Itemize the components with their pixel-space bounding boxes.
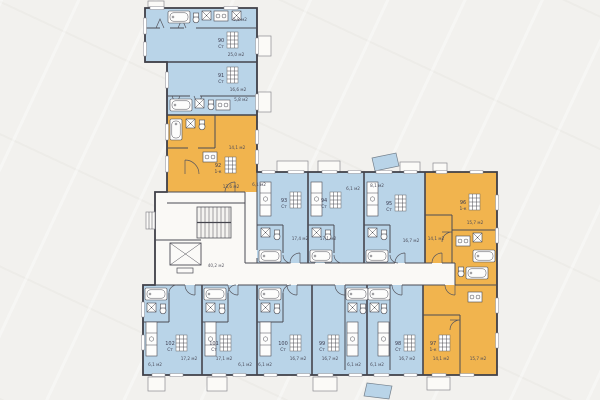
window xyxy=(150,7,164,10)
window xyxy=(460,374,474,377)
kitchen-counter-icon xyxy=(347,322,358,356)
area-label-main: 16,6 м2 xyxy=(230,87,247,92)
stove-icon xyxy=(216,100,230,110)
apartment-number: 95 xyxy=(386,201,392,207)
toilet-icon xyxy=(199,120,205,130)
apartment-number: 99 xyxy=(319,341,325,347)
window xyxy=(322,171,337,174)
corridor xyxy=(245,263,455,285)
area-table-icon xyxy=(227,32,238,48)
apartment-number: 100 xyxy=(278,341,288,347)
bathtub-icon xyxy=(259,288,281,300)
area-label-main: 16,7 м2 xyxy=(399,356,416,361)
apartment-number: 91 xyxy=(218,73,224,79)
window xyxy=(349,374,362,377)
area-table-icon xyxy=(330,192,341,208)
window xyxy=(264,374,277,377)
area-table-icon xyxy=(220,335,231,351)
area-label-main: 16,7 м2 xyxy=(403,238,420,243)
apartment-type: Ст xyxy=(395,347,401,353)
area-label-second: 5,8 м2 xyxy=(234,97,248,102)
area-label-second: 5,8 м2 xyxy=(233,17,247,22)
window xyxy=(404,374,417,377)
window xyxy=(348,171,361,174)
area-table-icon xyxy=(225,157,236,173)
washer-icon xyxy=(261,303,270,312)
balcony xyxy=(313,377,337,391)
area-label-main: 14,1 м2 xyxy=(433,356,450,361)
apartment-type: Ст xyxy=(167,347,173,353)
area-table-icon xyxy=(404,335,415,351)
window xyxy=(318,374,333,377)
kitchen-counter-icon xyxy=(378,322,389,356)
floor-plan-svg: 90 Ст 25,0 м2 5,8 м2 91 Ст 16,6 м2 5,8 м… xyxy=(0,0,600,400)
area-table-icon xyxy=(395,195,406,211)
floor-plan-canvas: 90 Ст 25,0 м2 5,8 м2 91 Ст 16,6 м2 5,8 м… xyxy=(0,0,600,400)
washer-icon xyxy=(206,303,215,312)
toilet-icon xyxy=(160,304,166,314)
balcony xyxy=(258,92,271,112)
stove-icon xyxy=(456,236,470,246)
area-label-second: 14,1 м2 xyxy=(428,236,445,241)
toilet-icon xyxy=(381,230,387,240)
washer-icon xyxy=(202,11,211,20)
window xyxy=(297,374,310,377)
window xyxy=(496,298,499,313)
apartment-96-room[interactable] xyxy=(425,172,497,263)
bathtub-icon xyxy=(259,250,281,262)
stove-icon xyxy=(214,11,228,21)
washer-icon xyxy=(261,228,270,237)
washer-icon xyxy=(186,119,195,128)
window xyxy=(170,374,183,377)
area-label-main: 15,7 м2 xyxy=(467,220,484,225)
kitchen-counter-icon xyxy=(260,322,271,356)
core-area xyxy=(155,192,245,285)
balcony xyxy=(148,1,164,7)
corridor-area-label: 40,2 м2 xyxy=(208,263,225,268)
area-table-icon xyxy=(469,194,480,210)
washer-icon xyxy=(370,303,379,312)
area-label-second: 6,1 м2 xyxy=(346,186,360,191)
bathtub-icon xyxy=(466,267,488,279)
window xyxy=(256,130,259,144)
window xyxy=(436,171,447,174)
area-label-main: 16,7 м2 xyxy=(322,356,339,361)
bathtub-icon xyxy=(368,288,390,300)
apartment-number: 90 xyxy=(218,38,224,44)
bathtub-icon xyxy=(170,119,182,140)
window xyxy=(166,156,169,172)
area-label-second: 6,1 м2 xyxy=(347,362,361,367)
window xyxy=(262,171,275,174)
area-label-second: 15,7 м2 xyxy=(470,356,487,361)
toilet-icon xyxy=(193,13,199,23)
area-label-second: 8,1 м2 xyxy=(370,183,384,188)
area-label-second: 6,1 м2 xyxy=(252,182,266,187)
window xyxy=(496,195,499,210)
area-table-icon xyxy=(439,335,450,351)
apartment-type: Ст xyxy=(218,79,224,85)
area-table-icon xyxy=(227,67,238,83)
apartment-type: 1-к xyxy=(459,206,466,212)
bathtub-icon xyxy=(168,11,190,23)
window xyxy=(224,7,238,10)
stove-icon xyxy=(468,292,482,302)
apartment-type: Ст xyxy=(280,347,286,353)
apartment-type: Ст xyxy=(386,207,392,213)
window xyxy=(470,171,483,174)
apartment-number: 97 xyxy=(430,341,436,347)
apartment-type: Ст xyxy=(321,204,327,210)
window xyxy=(374,374,389,377)
kitchen-counter-icon xyxy=(260,182,271,216)
apartment-number: 96 xyxy=(460,200,466,206)
balcony xyxy=(148,377,165,391)
area-label-main: 17,2 м2 xyxy=(181,356,198,361)
apartment-type: Ст xyxy=(218,44,224,50)
washer-icon xyxy=(473,233,482,242)
window xyxy=(144,18,147,34)
bathtub-icon xyxy=(473,250,495,262)
apartment-type: 1-к xyxy=(214,169,221,175)
window xyxy=(256,150,259,164)
toilet-icon xyxy=(274,230,280,240)
bathtub-icon xyxy=(346,288,368,300)
area-label-second: 6,1 м2 xyxy=(238,362,252,367)
bathtub-icon xyxy=(310,250,332,262)
balcony-tilted xyxy=(372,153,399,171)
window xyxy=(496,228,499,243)
window xyxy=(256,94,259,110)
toilet-icon xyxy=(219,304,225,314)
toilet-icon xyxy=(360,304,366,314)
window xyxy=(376,171,392,174)
area-label-main: 14,1 м2 xyxy=(229,145,246,150)
toilet-icon xyxy=(208,100,214,110)
apartment-type: Ст xyxy=(211,347,217,353)
area-table-icon xyxy=(176,335,187,351)
toilet-icon xyxy=(381,304,387,314)
area-label-main: 25,0 м2 xyxy=(228,52,245,57)
apartment-type: Ст xyxy=(319,347,325,353)
area-table-icon xyxy=(328,335,339,351)
window xyxy=(233,374,246,377)
window xyxy=(496,333,499,348)
area-label-second: 6,1 м2 xyxy=(258,362,272,367)
area-table-icon xyxy=(290,335,301,351)
window xyxy=(212,374,226,377)
toilet-icon xyxy=(458,267,464,277)
window xyxy=(152,374,165,377)
bathtub-icon xyxy=(204,288,226,300)
stairs-icon xyxy=(197,207,231,238)
window xyxy=(404,171,417,174)
area-label-main: 17,4 м2 xyxy=(292,236,309,241)
building-entrance[interactable] xyxy=(146,212,155,229)
apartment-type: 1-к xyxy=(429,347,436,353)
window xyxy=(432,374,446,377)
window xyxy=(256,38,259,54)
area-label-main: 16,7 м2 xyxy=(290,356,307,361)
apartment-number: 92 xyxy=(215,163,221,169)
bathtub-icon xyxy=(145,288,167,300)
corridor-strip-vertical xyxy=(245,192,257,263)
apartment-number: 101 xyxy=(209,341,219,347)
window xyxy=(166,124,169,140)
apartment-type: Ст xyxy=(281,204,287,210)
bathtub-icon xyxy=(170,99,192,111)
washer-icon xyxy=(147,303,156,312)
apartment-number: 98 xyxy=(395,341,401,347)
balcony xyxy=(207,377,227,391)
apartment-number: 102 xyxy=(165,341,175,347)
washer-icon xyxy=(368,228,377,237)
area-label-second: 6,1 м2 xyxy=(370,362,384,367)
toilet-icon xyxy=(274,304,280,314)
apartment-number: 94 xyxy=(321,198,327,204)
kitchen-counter-icon xyxy=(146,322,157,356)
apartment-number: 93 xyxy=(281,198,287,204)
area-label-second: 6,1 м2 xyxy=(148,362,162,367)
balcony-tilted xyxy=(364,383,392,399)
area-label-main: 17,1 м2 xyxy=(320,236,337,241)
bathtub-icon xyxy=(366,250,388,262)
balcony xyxy=(427,377,450,390)
balcony xyxy=(258,36,271,56)
area-label-main: 17,1 м2 xyxy=(216,356,233,361)
window xyxy=(288,171,304,174)
balcony xyxy=(433,163,447,171)
washer-icon xyxy=(348,303,357,312)
area-table-icon xyxy=(290,192,301,208)
stove-icon xyxy=(203,152,217,162)
window xyxy=(166,72,169,88)
window xyxy=(142,302,145,317)
window xyxy=(142,335,145,350)
window xyxy=(144,42,147,56)
washer-icon xyxy=(195,99,204,108)
area-label-second: 13,6 м2 xyxy=(223,184,240,189)
